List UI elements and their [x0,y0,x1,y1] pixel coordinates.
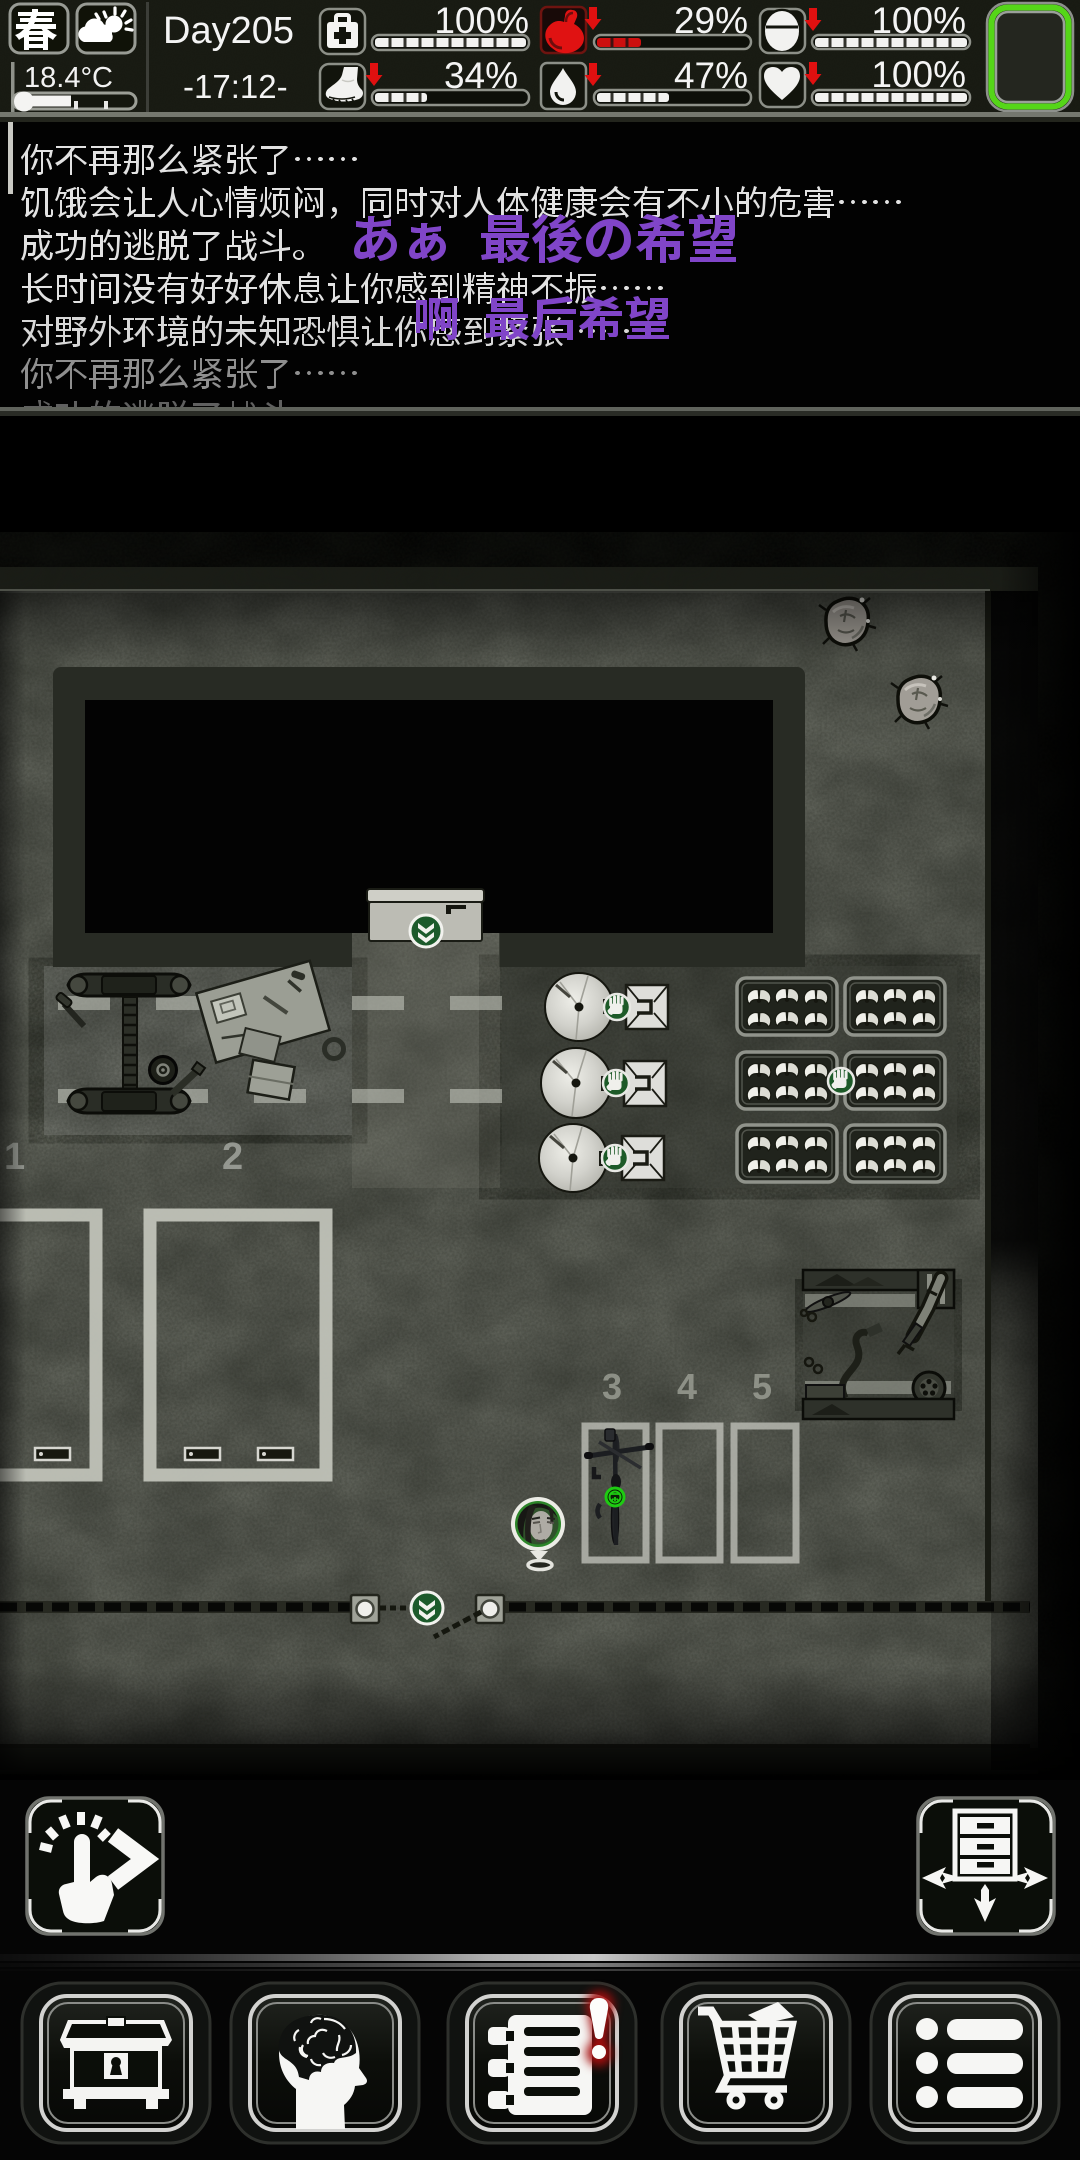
svg-text:100%: 100% [434,0,529,41]
svg-text:4: 4 [677,1366,697,1407]
svg-text:18.4°C: 18.4°C [24,62,113,94]
svg-text:5: 5 [752,1366,772,1407]
svg-text:Day205: Day205 [163,10,294,52]
svg-text:2: 2 [222,1136,243,1178]
svg-text:-17:12-: -17:12- [183,68,288,105]
svg-text:3: 3 [602,1366,622,1407]
